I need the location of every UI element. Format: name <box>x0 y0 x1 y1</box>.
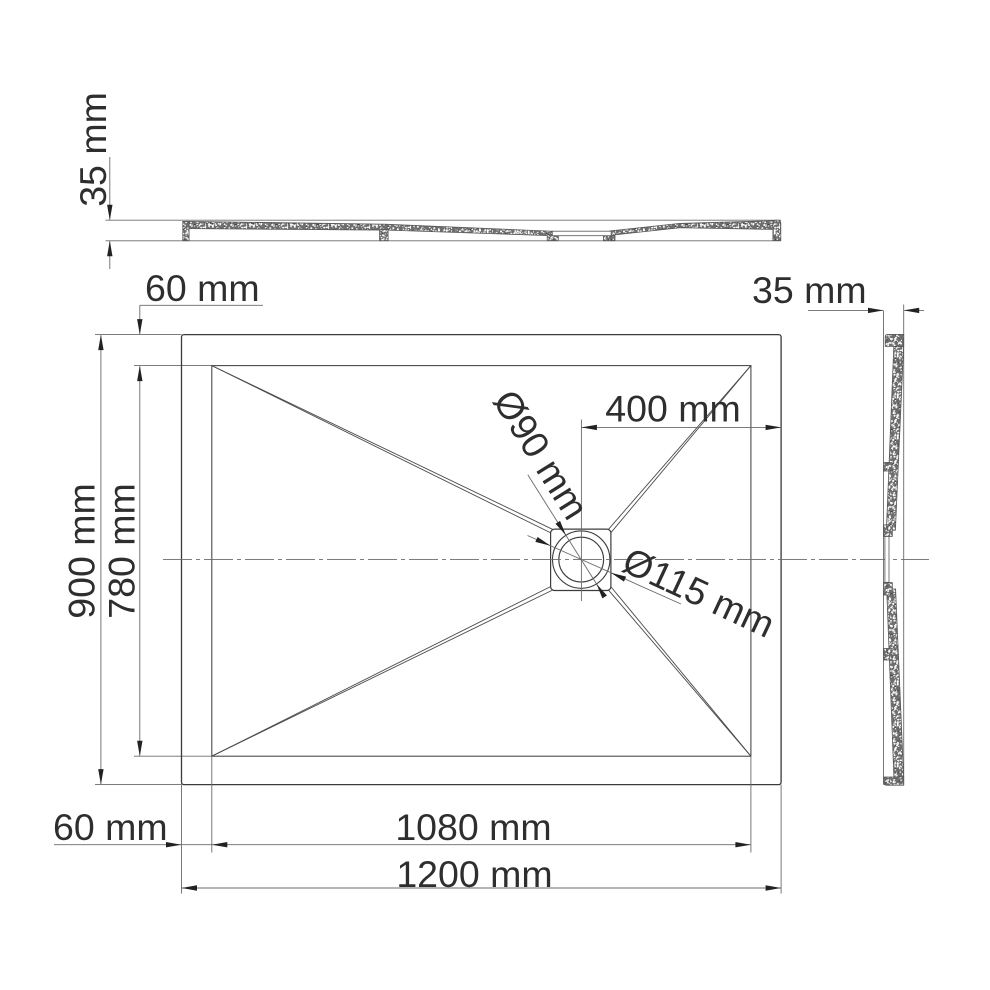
svg-text:60 mm: 60 mm <box>53 806 168 848</box>
svg-text:1200 mm: 1200 mm <box>396 853 552 895</box>
svg-text:900 mm: 900 mm <box>61 483 103 618</box>
svg-text:35 mm: 35 mm <box>752 269 867 311</box>
svg-text:1080 mm: 1080 mm <box>395 806 551 848</box>
svg-text:780 mm: 780 mm <box>100 483 142 618</box>
svg-text:60 mm: 60 mm <box>145 267 260 309</box>
svg-text:35 mm: 35 mm <box>72 92 114 207</box>
svg-text:400 mm: 400 mm <box>605 388 740 430</box>
